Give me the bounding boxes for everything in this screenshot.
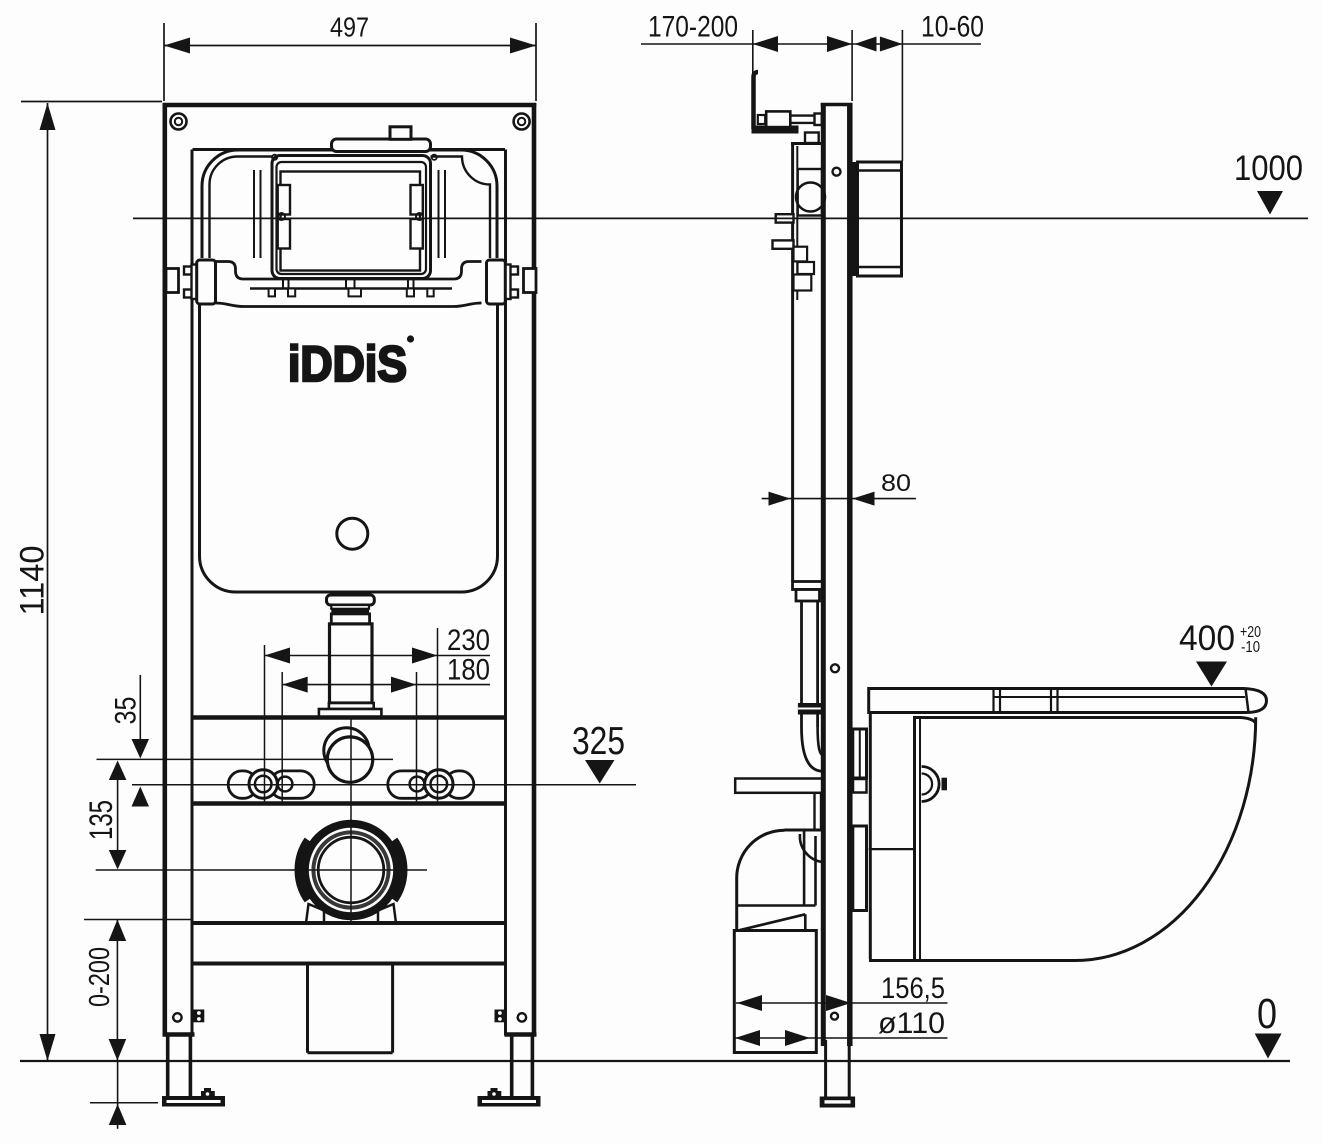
svg-text:10-60: 10-60 (921, 11, 984, 44)
svg-text:ø110: ø110 (878, 1007, 945, 1040)
svg-text:156,5: 156,5 (881, 972, 945, 1005)
svg-text:0-200: 0-200 (84, 947, 116, 1007)
svg-text:497: 497 (330, 12, 369, 43)
svg-text:1000: 1000 (1234, 149, 1303, 188)
svg-text:35: 35 (110, 697, 143, 725)
svg-text:230: 230 (447, 624, 490, 657)
svg-text:170-200: 170-200 (648, 11, 738, 44)
svg-text:iDDiS: iDDiS (288, 336, 407, 392)
svg-text:-10: -10 (1241, 639, 1260, 656)
svg-text:325: 325 (572, 720, 625, 763)
svg-text:180: 180 (447, 654, 490, 687)
svg-text:1140: 1140 (14, 546, 52, 616)
svg-text:400: 400 (1179, 619, 1235, 658)
svg-text:80: 80 (881, 470, 911, 497)
svg-text:135: 135 (83, 800, 119, 840)
svg-text:0: 0 (1257, 990, 1277, 1038)
